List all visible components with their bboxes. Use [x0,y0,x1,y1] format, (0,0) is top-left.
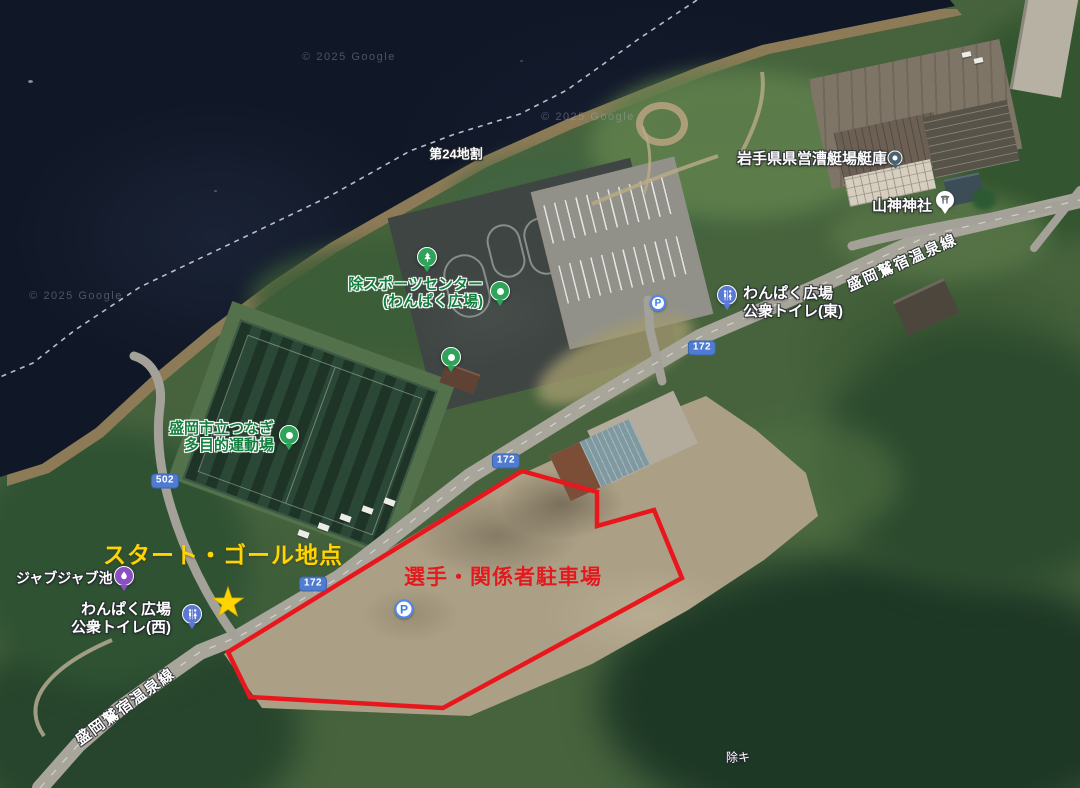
road-centerline [40,200,1080,788]
poi-label-toilet-east[interactable]: わんぱく広場 公衆トイレ(東) [743,285,843,320]
park-path [742,72,763,152]
sports-center-line2: (わんぱく広場) [348,294,483,311]
green-dot-pin-icon[interactable] [279,425,299,445]
poi-label-tsunagi-field[interactable]: 盛岡市立つなぎ 多目的運動場 [169,421,274,454]
poi-dot-icon[interactable] [888,151,903,166]
google-watermark: © 2025 Google [29,290,123,302]
tree-glyph [421,251,434,264]
restroom-icon[interactable] [717,285,737,305]
toilet-east-line2: 公衆トイレ(東) [743,303,843,321]
google-watermark: © 2025 Google [541,111,635,123]
restroom-glyph [721,289,734,302]
satellite-map[interactable]: © 2025 Google © 2025 Google © 2025 Googl… [0,0,1080,788]
droplet-glyph [118,570,130,582]
poi-label-sports-center[interactable]: 除スポーツセンター (わんぱく広場) [348,277,483,310]
toilet-west-line1: わんぱく広場 [71,601,171,619]
route-shield-172: 172 [299,577,327,592]
restroom-icon[interactable] [182,604,202,624]
poi-label-shrine[interactable]: 山神神社 [872,195,932,216]
block-label: 第24地割 [429,144,482,163]
google-watermark: © 2025 Google [302,51,396,63]
route-shield-502: 502 [151,474,179,489]
green-dot-pin-icon[interactable] [490,281,510,301]
poi-label-boathouse[interactable]: 岩手県県営漕艇場艇庫 [737,148,887,169]
poi-label-toilet-west[interactable]: わんぱく広場 公衆トイレ(西) [71,601,171,636]
route-shield-172: 172 [492,454,520,469]
sports-center-line1: 除スポーツセンター [348,277,483,294]
restroom-glyph [186,608,199,621]
toilet-east-line1: わんぱく広場 [743,285,843,303]
road-502 [134,356,236,638]
tsunagi-line2: 多目的運動場 [169,438,274,455]
joki-label: 除キ [726,749,750,766]
green-dot-pin-icon[interactable] [441,347,461,367]
main-road [40,200,1080,788]
parking-p-icon[interactable]: P [395,600,414,619]
parking-area-label: 選手・関係者駐車場 [404,561,602,591]
parking-p-icon[interactable]: P [650,295,666,311]
torii-glyph [939,194,951,206]
toilet-west-line2: 公衆トイレ(西) [71,619,171,637]
tree-icon[interactable] [417,247,437,267]
park-path [592,156,718,204]
route-shield-172: 172 [688,341,716,356]
start-goal-label: スタート・ゴール地点 [103,536,343,570]
tsunagi-line1: 盛岡市立つなぎ [169,421,274,438]
torii-icon[interactable] [936,191,954,209]
poi-label-jabujabu[interactable]: ジャブジャブ池 [16,568,113,588]
